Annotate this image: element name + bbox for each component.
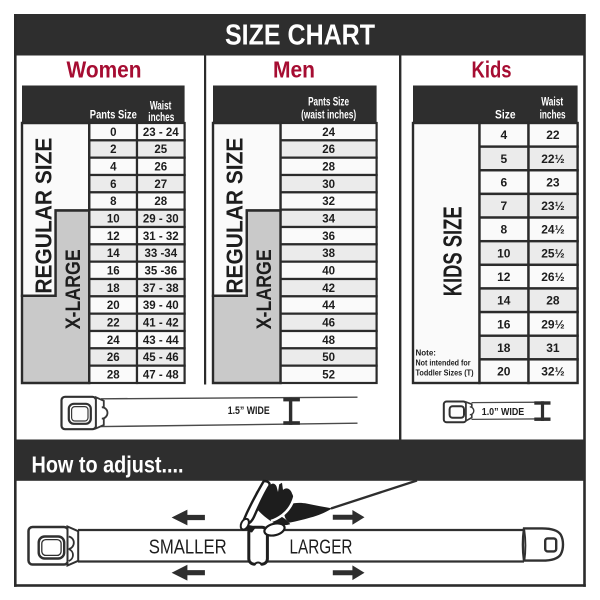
svg-text:20: 20	[107, 300, 120, 312]
svg-text:24½: 24½	[541, 223, 564, 237]
svg-text:44: 44	[322, 300, 335, 312]
svg-text:29½: 29½	[541, 317, 564, 331]
svg-text:29 - 30: 29 - 30	[143, 214, 179, 226]
svg-text:45 - 46: 45 - 46	[143, 352, 179, 364]
svg-text:Pants Size: Pants Size	[308, 97, 349, 109]
svg-text:35 -36: 35 -36	[144, 266, 177, 278]
svg-text:28: 28	[154, 196, 167, 208]
svg-text:52: 52	[322, 370, 335, 382]
svg-text:REGULAR SIZE: REGULAR SIZE	[222, 138, 248, 294]
svg-text:26: 26	[154, 162, 167, 174]
svg-text:Kids: Kids	[472, 57, 512, 83]
svg-text:32: 32	[322, 196, 335, 208]
svg-text:34: 34	[322, 214, 335, 226]
svg-text:46: 46	[322, 318, 335, 330]
svg-text:23½: 23½	[541, 199, 564, 213]
svg-text:47 - 48: 47 - 48	[143, 370, 179, 382]
svg-text:Note:: Note:	[416, 349, 436, 358]
svg-text:18: 18	[107, 283, 120, 295]
svg-text:6: 6	[500, 175, 507, 189]
svg-text:28: 28	[546, 294, 560, 308]
svg-text:26: 26	[322, 144, 335, 156]
svg-text:18: 18	[497, 341, 511, 355]
svg-text:KIDS SIZE: KIDS SIZE	[437, 206, 467, 296]
svg-text:37 - 38: 37 - 38	[143, 283, 179, 295]
svg-text:24: 24	[107, 335, 120, 347]
svg-text:38: 38	[322, 248, 335, 260]
svg-text:LARGER: LARGER	[290, 536, 353, 559]
svg-text:inches: inches	[540, 110, 566, 122]
svg-text:26: 26	[107, 352, 120, 364]
svg-text:31: 31	[546, 341, 560, 355]
svg-text:22: 22	[107, 318, 120, 330]
svg-text:26½: 26½	[541, 270, 564, 284]
svg-text:0: 0	[110, 127, 116, 139]
svg-text:5: 5	[500, 152, 507, 166]
svg-text:32½: 32½	[541, 365, 564, 379]
svg-text:SIZE CHART: SIZE CHART	[225, 20, 375, 52]
svg-text:8: 8	[110, 196, 117, 208]
svg-text:Pants Size: Pants Size	[90, 109, 137, 121]
svg-text:28: 28	[322, 162, 335, 174]
svg-text:Men: Men	[273, 57, 315, 83]
svg-text:43 - 44: 43 - 44	[143, 335, 179, 347]
svg-text:30: 30	[322, 179, 335, 191]
svg-text:16: 16	[107, 266, 120, 278]
svg-text:Size: Size	[495, 109, 516, 121]
svg-text:12: 12	[497, 270, 511, 284]
svg-text:X-LARGE: X-LARGE	[62, 249, 85, 329]
svg-text:48: 48	[322, 335, 335, 347]
svg-text:25½: 25½	[541, 246, 564, 260]
svg-text:How to adjust....: How to adjust....	[32, 451, 184, 477]
svg-text:27: 27	[154, 179, 167, 191]
svg-text:X-LARGE: X-LARGE	[253, 249, 276, 329]
svg-text:6: 6	[110, 179, 116, 191]
svg-text:16: 16	[497, 317, 511, 331]
svg-text:42: 42	[322, 283, 335, 295]
svg-text:31 - 32: 31 - 32	[143, 231, 179, 243]
svg-text:14: 14	[107, 248, 120, 260]
svg-text:40: 40	[322, 266, 335, 278]
svg-text:20: 20	[497, 365, 511, 379]
svg-text:14: 14	[497, 294, 511, 308]
svg-text:4: 4	[500, 128, 507, 142]
svg-text:SMALLER: SMALLER	[149, 536, 227, 559]
svg-text:(waist inches): (waist inches)	[301, 110, 356, 122]
svg-text:50: 50	[322, 352, 335, 364]
svg-text:8: 8	[500, 223, 507, 237]
svg-text:10: 10	[107, 214, 120, 226]
svg-text:36: 36	[322, 231, 335, 243]
svg-text:23: 23	[546, 175, 560, 189]
svg-text:22½: 22½	[541, 152, 564, 166]
svg-text:23 - 24: 23 - 24	[143, 127, 179, 139]
svg-text:REGULAR SIZE: REGULAR SIZE	[30, 138, 56, 294]
svg-text:22: 22	[546, 128, 560, 142]
svg-text:12: 12	[107, 231, 120, 243]
svg-text:39 - 40: 39 - 40	[143, 300, 179, 312]
svg-text:Women: Women	[67, 57, 142, 83]
svg-text:41 - 42: 41 - 42	[143, 318, 179, 330]
svg-text:Toddler Sizes (T): Toddler Sizes (T)	[416, 369, 474, 378]
svg-text:33 -34: 33 -34	[144, 248, 177, 260]
svg-text:24: 24	[322, 127, 335, 139]
svg-text:4: 4	[110, 162, 117, 174]
svg-text:1.0” WIDE: 1.0” WIDE	[482, 406, 525, 418]
svg-text:1.5” WIDE: 1.5” WIDE	[228, 405, 270, 417]
svg-text:7: 7	[500, 199, 507, 213]
svg-text:Waist: Waist	[541, 97, 563, 109]
svg-text:2: 2	[110, 144, 116, 156]
svg-text:25: 25	[154, 144, 167, 156]
svg-text:Not intended for: Not intended for	[416, 359, 471, 368]
svg-text:10: 10	[497, 246, 511, 260]
svg-text:28: 28	[107, 370, 120, 382]
